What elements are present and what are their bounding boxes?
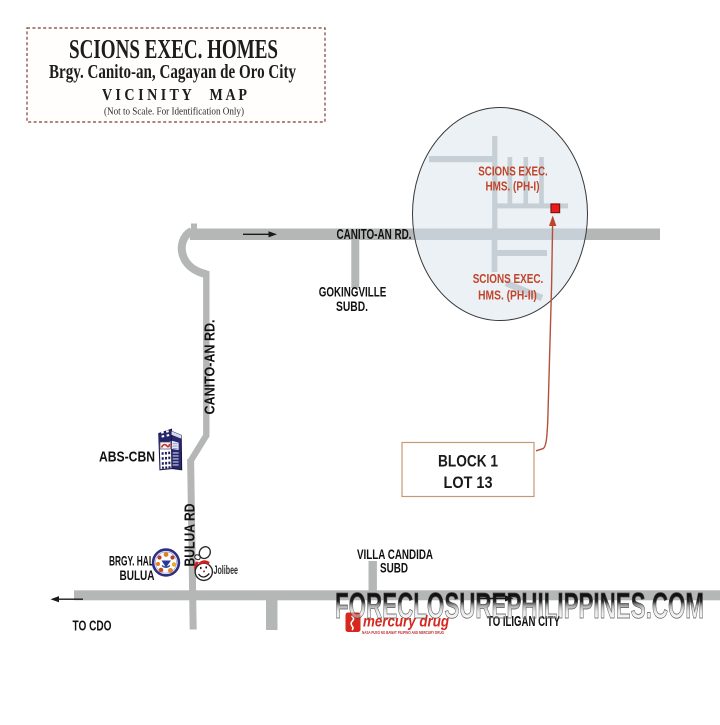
svg-text:CANITO-AN RD.: CANITO-AN RD.	[337, 226, 412, 243]
svg-text:BULUA: BULUA	[120, 567, 155, 583]
svg-text:HMS. (PH-II): HMS. (PH-II)	[478, 288, 537, 303]
svg-text:SUBD: SUBD	[380, 561, 408, 576]
svg-text:BRGY. HALL: BRGY. HALL	[109, 553, 159, 569]
svg-text:BLOCK 1: BLOCK 1	[438, 452, 498, 471]
svg-text:GOKINGVILLE: GOKINGVILLE	[319, 284, 387, 299]
svg-text:Brgy. Canito-an, Cagayan de Or: Brgy. Canito-an, Cagayan de Oro City	[49, 61, 296, 83]
svg-text:ABS-CBN: ABS-CBN	[99, 449, 155, 466]
svg-text:HMS. (PH-I): HMS. (PH-I)	[486, 179, 540, 194]
svg-text:Jolibee: Jolibee	[214, 565, 239, 577]
svg-text:SCIONS EXEC.: SCIONS EXEC.	[473, 271, 544, 286]
svg-text:(Not to Scale. For Identifica: (Not to Scale. For Identification Only)	[104, 107, 244, 118]
svg-text:SCIONS EXEC.: SCIONS EXEC.	[478, 164, 548, 179]
svg-text:V I C I N I T Y M A P: V I C I N I T Y M A P	[102, 85, 247, 104]
svg-text:LOT 13: LOT 13	[444, 473, 493, 492]
svg-text:NASA PUSO NG BAWAT PILIPINO AN: NASA PUSO NG BAWAT PILIPINO ANG MERCURY …	[362, 630, 444, 635]
svg-text:SUBD.: SUBD.	[336, 299, 368, 314]
svg-text:CANITO-AN RD.: CANITO-AN RD.	[202, 320, 219, 415]
svg-text:SCIONS EXEC. HOMES: SCIONS EXEC. HOMES	[69, 33, 278, 64]
svg-text:FORECLOSUREPHILIPPINES.COM: FORECLOSUREPHILIPPINES.COM	[335, 585, 704, 626]
svg-text:TO CDO: TO CDO	[73, 618, 112, 634]
